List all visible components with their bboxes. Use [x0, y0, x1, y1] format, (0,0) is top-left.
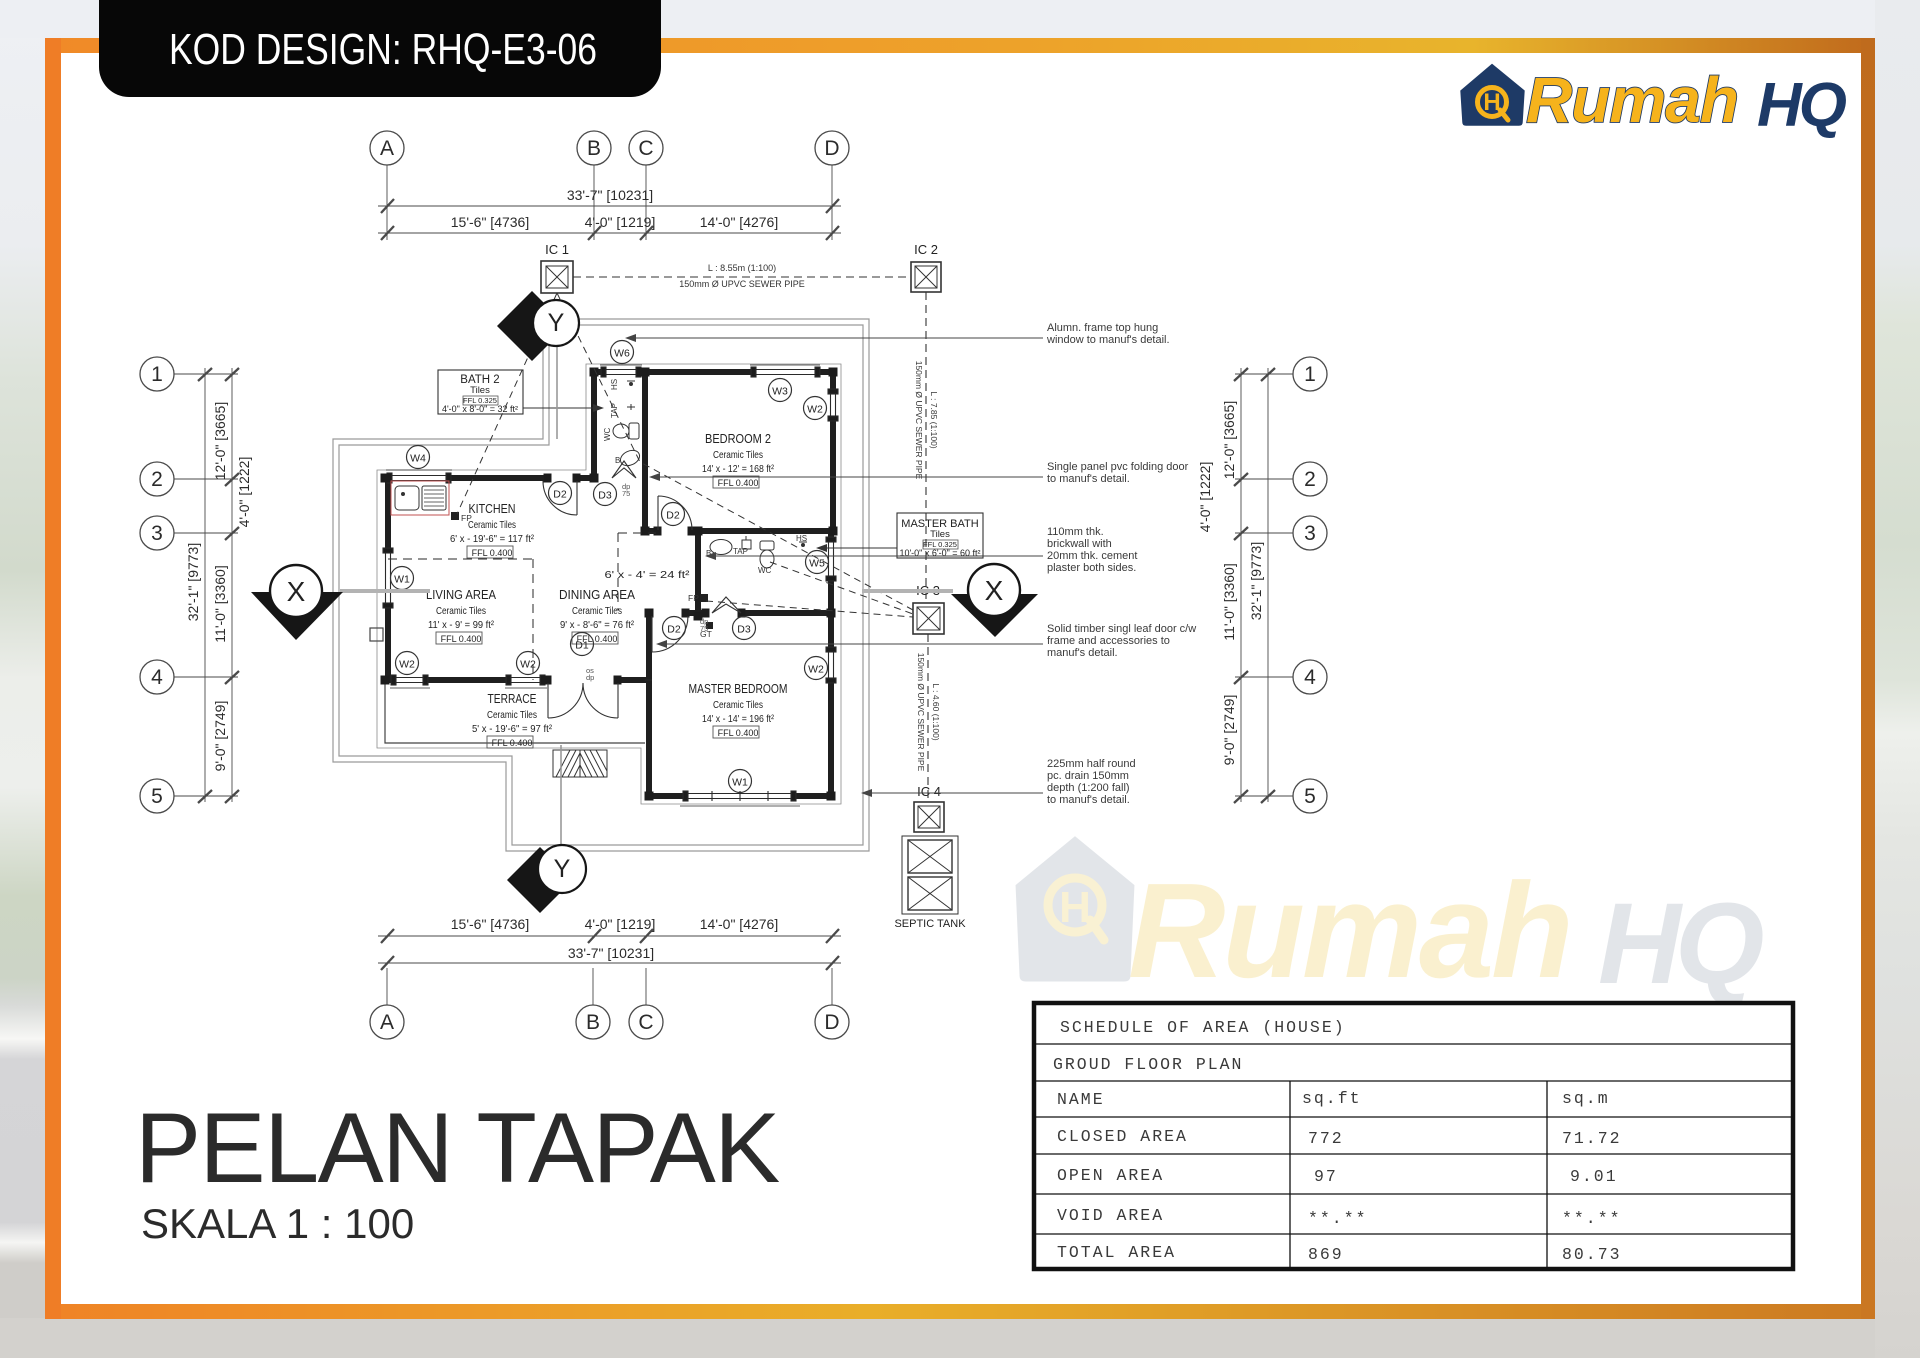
- svg-text:Ceramic Tiles: Ceramic Tiles: [572, 605, 622, 617]
- svg-text:**.**: **.**: [1562, 1209, 1622, 1228]
- svg-text:4'-0" [1222]: 4'-0" [1222]: [1197, 462, 1213, 533]
- svg-text:WC: WC: [758, 566, 772, 575]
- svg-text:Ceramic Tiles: Ceramic Tiles: [468, 519, 516, 531]
- svg-text:11' x - 9' = 99 ft²: 11' x - 9' = 99 ft²: [428, 619, 494, 631]
- svg-text:W2: W2: [520, 659, 536, 671]
- svg-text:9'-0" [2749]: 9'-0" [2749]: [212, 701, 228, 772]
- svg-text:brickwall with: brickwall with: [1047, 538, 1112, 550]
- svg-text:OPEN AREA: OPEN AREA: [1057, 1166, 1164, 1185]
- svg-text:VOID AREA: VOID AREA: [1057, 1206, 1164, 1225]
- svg-text:33'-7" [10231]: 33'-7" [10231]: [567, 187, 653, 203]
- svg-text:33'-7" [10231]: 33'-7" [10231]: [568, 945, 654, 961]
- svg-text:CLOSED AREA: CLOSED AREA: [1057, 1127, 1188, 1146]
- svg-text:GROUD FLOOR PLAN: GROUD FLOOR PLAN: [1053, 1055, 1243, 1074]
- svg-text:W6: W6: [614, 348, 630, 360]
- svg-text:9.01: 9.01: [1570, 1167, 1618, 1186]
- svg-text:L : 4.60 (1:100): L : 4.60 (1:100): [931, 683, 941, 741]
- svg-text:2: 2: [151, 468, 163, 491]
- svg-text:PELAN TAPAK: PELAN TAPAK: [135, 1092, 779, 1203]
- svg-text:FP: FP: [688, 593, 699, 603]
- svg-text:MASTER BEDROOM: MASTER BEDROOM: [689, 682, 788, 696]
- svg-text:IC 4: IC 4: [917, 784, 941, 799]
- svg-text:KITCHEN: KITCHEN: [469, 502, 516, 516]
- svg-text:IC 2: IC 2: [914, 242, 938, 257]
- svg-text:Alumn. frame top hung: Alumn. frame top hung: [1047, 322, 1158, 334]
- svg-text:D1: D1: [575, 640, 589, 652]
- svg-text:15'-6" [4736]: 15'-6" [4736]: [451, 214, 529, 230]
- svg-text:869: 869: [1308, 1245, 1344, 1264]
- svg-text:X: X: [985, 575, 1004, 606]
- svg-text:B: B: [586, 1011, 600, 1034]
- svg-text:IC 1: IC 1: [545, 242, 569, 257]
- svg-text:D3: D3: [598, 490, 612, 502]
- svg-text:150mm Ø UPVC SEWER PIPE: 150mm Ø UPVC SEWER PIPE: [679, 279, 805, 289]
- svg-text:sq.m: sq.m: [1562, 1089, 1610, 1108]
- svg-text:B: B: [615, 456, 620, 465]
- svg-text:plaster both sides.: plaster both sides.: [1047, 562, 1136, 574]
- svg-text:4: 4: [151, 666, 163, 689]
- svg-text:71.72: 71.72: [1562, 1129, 1622, 1148]
- svg-text:pc. drain 150mm: pc. drain 150mm: [1047, 770, 1129, 782]
- svg-text:2: 2: [1304, 468, 1316, 491]
- svg-text:HS: HS: [610, 379, 619, 390]
- svg-text:FFL 0.400: FFL 0.400: [718, 728, 759, 738]
- svg-text:to manuf's detail.: to manuf's detail.: [1047, 473, 1130, 485]
- svg-text:15'-6" [4736]: 15'-6" [4736]: [451, 916, 529, 932]
- svg-text:5' x - 19'-6" = 97 ft²: 5' x - 19'-6" = 97 ft²: [472, 723, 552, 735]
- svg-text:110mm thk.: 110mm thk.: [1047, 526, 1104, 538]
- svg-text:D2: D2: [667, 624, 681, 636]
- svg-text:LIVING AREA: LIVING AREA: [426, 588, 497, 602]
- svg-text:L : 7.85 (1:100): L : 7.85 (1:100): [929, 391, 939, 449]
- svg-text:C: C: [638, 137, 653, 160]
- svg-text:NAME: NAME: [1057, 1090, 1105, 1109]
- svg-text:225mm half round: 225mm half round: [1047, 758, 1136, 770]
- svg-text:4'-0" [1219]: 4'-0" [1219]: [585, 214, 656, 230]
- svg-text:BEDROOM 2: BEDROOM 2: [705, 432, 771, 446]
- svg-text:5: 5: [151, 785, 163, 808]
- svg-text:A: A: [380, 1011, 394, 1034]
- svg-text:FFL 0.400: FFL 0.400: [472, 548, 513, 558]
- svg-text:Tiles: Tiles: [470, 385, 490, 396]
- svg-text:W2: W2: [807, 404, 823, 416]
- svg-text:D: D: [824, 137, 839, 160]
- svg-text:A: A: [380, 137, 394, 160]
- svg-text:HS: HS: [796, 534, 807, 543]
- svg-text:Ceramic Tiles: Ceramic Tiles: [713, 449, 763, 461]
- svg-text:to manuf's detail.: to manuf's detail.: [1047, 794, 1130, 806]
- svg-text:HQ: HQ: [1598, 880, 1763, 1008]
- svg-text:Rumah: Rumah: [1128, 855, 1571, 1006]
- svg-text:SEPTIC TANK: SEPTIC TANK: [894, 918, 966, 930]
- svg-text:W3: W3: [772, 386, 788, 398]
- svg-text:X: X: [287, 576, 306, 607]
- svg-text:3: 3: [1304, 522, 1316, 545]
- svg-text:20mm thk. cement: 20mm thk. cement: [1047, 550, 1137, 562]
- svg-text:Single panel pvc folding door: Single panel pvc folding door: [1047, 461, 1189, 473]
- svg-text:FFL 0.400: FFL 0.400: [718, 478, 759, 488]
- svg-text:Ceramic Tiles: Ceramic Tiles: [487, 709, 537, 721]
- svg-text:6' x - 4' = 24 ft²: 6' x - 4' = 24 ft²: [605, 569, 691, 581]
- svg-text:6' x - 19'-6" = 117 ft²: 6' x - 19'-6" = 117 ft²: [450, 533, 534, 545]
- svg-text:12'-0" [3665]: 12'-0" [3665]: [1221, 401, 1237, 479]
- svg-text:L : 8.55m (1:100): L : 8.55m (1:100): [708, 263, 776, 273]
- svg-text:W5: W5: [809, 558, 825, 570]
- svg-text:dp: dp: [586, 673, 594, 682]
- svg-text:75: 75: [622, 489, 630, 498]
- svg-text:11'-0" [3360]: 11'-0" [3360]: [1221, 563, 1237, 640]
- svg-text:KOD DESIGN: RHQ-E3-06: KOD DESIGN: RHQ-E3-06: [169, 25, 597, 74]
- svg-text:9' x - 8'-6" = 76 ft²: 9' x - 8'-6" = 76 ft²: [560, 619, 634, 631]
- svg-text:TERRACE: TERRACE: [488, 692, 537, 706]
- svg-text:4: 4: [1304, 666, 1316, 689]
- svg-text:D: D: [824, 1011, 839, 1034]
- svg-text:W4: W4: [410, 453, 426, 465]
- svg-text:B: B: [587, 137, 601, 160]
- svg-text:depth (1:200 fall): depth (1:200 fall): [1047, 782, 1130, 794]
- svg-text:W1: W1: [732, 777, 748, 789]
- svg-text:4'-0" [1222]: 4'-0" [1222]: [236, 457, 252, 528]
- svg-text:1: 1: [1304, 363, 1316, 386]
- svg-text:D3: D3: [737, 624, 751, 636]
- svg-text:H: H: [1483, 89, 1500, 116]
- svg-text:SCHEDULE OF AREA (HOUSE): SCHEDULE OF AREA (HOUSE): [1060, 1018, 1346, 1037]
- svg-text:Solid timber singl leaf door c: Solid timber singl leaf door c/w: [1047, 623, 1196, 635]
- svg-text:C: C: [638, 1011, 653, 1034]
- svg-text:97: 97: [1314, 1167, 1338, 1186]
- svg-text:80.73: 80.73: [1562, 1245, 1622, 1264]
- svg-text:Y: Y: [554, 855, 571, 883]
- svg-text:W1: W1: [394, 574, 410, 586]
- svg-text:4'-0" [1219]: 4'-0" [1219]: [585, 916, 656, 932]
- svg-text:1: 1: [151, 363, 163, 386]
- svg-text:14'-0" [4276]: 14'-0" [4276]: [700, 214, 778, 230]
- svg-text:D2: D2: [666, 510, 680, 522]
- svg-text:frame and accessories to: frame and accessories to: [1047, 635, 1170, 647]
- svg-text:W2: W2: [808, 664, 824, 676]
- svg-text:FFL 0.400: FFL 0.400: [492, 738, 533, 748]
- svg-text:FFL 0.400: FFL 0.400: [441, 634, 482, 644]
- svg-text:WC: WC: [603, 427, 612, 441]
- svg-text:TAP: TAP: [733, 547, 748, 556]
- svg-text:Y: Y: [548, 309, 565, 337]
- svg-text:772: 772: [1308, 1129, 1344, 1148]
- svg-text:14' x - 14' = 196 ft²: 14' x - 14' = 196 ft²: [702, 713, 774, 725]
- svg-text:TOTAL AREA: TOTAL AREA: [1057, 1243, 1176, 1262]
- svg-text:150mm Ø UPVC SEWER PIPE: 150mm Ø UPVC SEWER PIPE: [916, 653, 926, 772]
- svg-text:3: 3: [151, 522, 163, 545]
- svg-text:12'-0" [3665]: 12'-0" [3665]: [212, 402, 228, 480]
- svg-text:window to manuf's detail.: window to manuf's detail.: [1046, 334, 1170, 346]
- svg-text:14'-0" [4276]: 14'-0" [4276]: [700, 916, 778, 932]
- svg-text:Ceramic Tiles: Ceramic Tiles: [436, 605, 486, 617]
- svg-text:Rumah: Rumah: [1526, 64, 1738, 136]
- svg-text:DINING AREA: DINING AREA: [559, 588, 636, 602]
- svg-text:5: 5: [1304, 785, 1316, 808]
- svg-text:Ceramic Tiles: Ceramic Tiles: [713, 699, 763, 711]
- svg-text:Tiles: Tiles: [930, 529, 950, 540]
- svg-text:75: 75: [700, 624, 708, 633]
- svg-text:manuf's detail.: manuf's detail.: [1047, 647, 1118, 659]
- svg-text:32'-1" [9773]: 32'-1" [9773]: [1248, 542, 1264, 620]
- svg-text:14' x - 12' = 168 ft²: 14' x - 12' = 168 ft²: [702, 463, 774, 475]
- svg-text:SKALA 1 : 100: SKALA 1 : 100: [141, 1200, 414, 1247]
- svg-text:W2: W2: [399, 659, 415, 671]
- svg-text:**.**: **.**: [1308, 1209, 1368, 1228]
- svg-text:9'-0" [2749]: 9'-0" [2749]: [1221, 695, 1237, 766]
- svg-text:HQ: HQ: [1757, 71, 1847, 140]
- svg-text:H: H: [1059, 883, 1091, 932]
- svg-text:150mm Ø UPVC SEWER PIPE: 150mm Ø UPVC SEWER PIPE: [914, 361, 924, 480]
- svg-text:sq.ft: sq.ft: [1302, 1089, 1362, 1108]
- svg-text:11'-0" [3360]: 11'-0" [3360]: [212, 565, 228, 642]
- svg-text:D2: D2: [553, 489, 567, 501]
- svg-text:32'-1" [9773]: 32'-1" [9773]: [185, 543, 201, 621]
